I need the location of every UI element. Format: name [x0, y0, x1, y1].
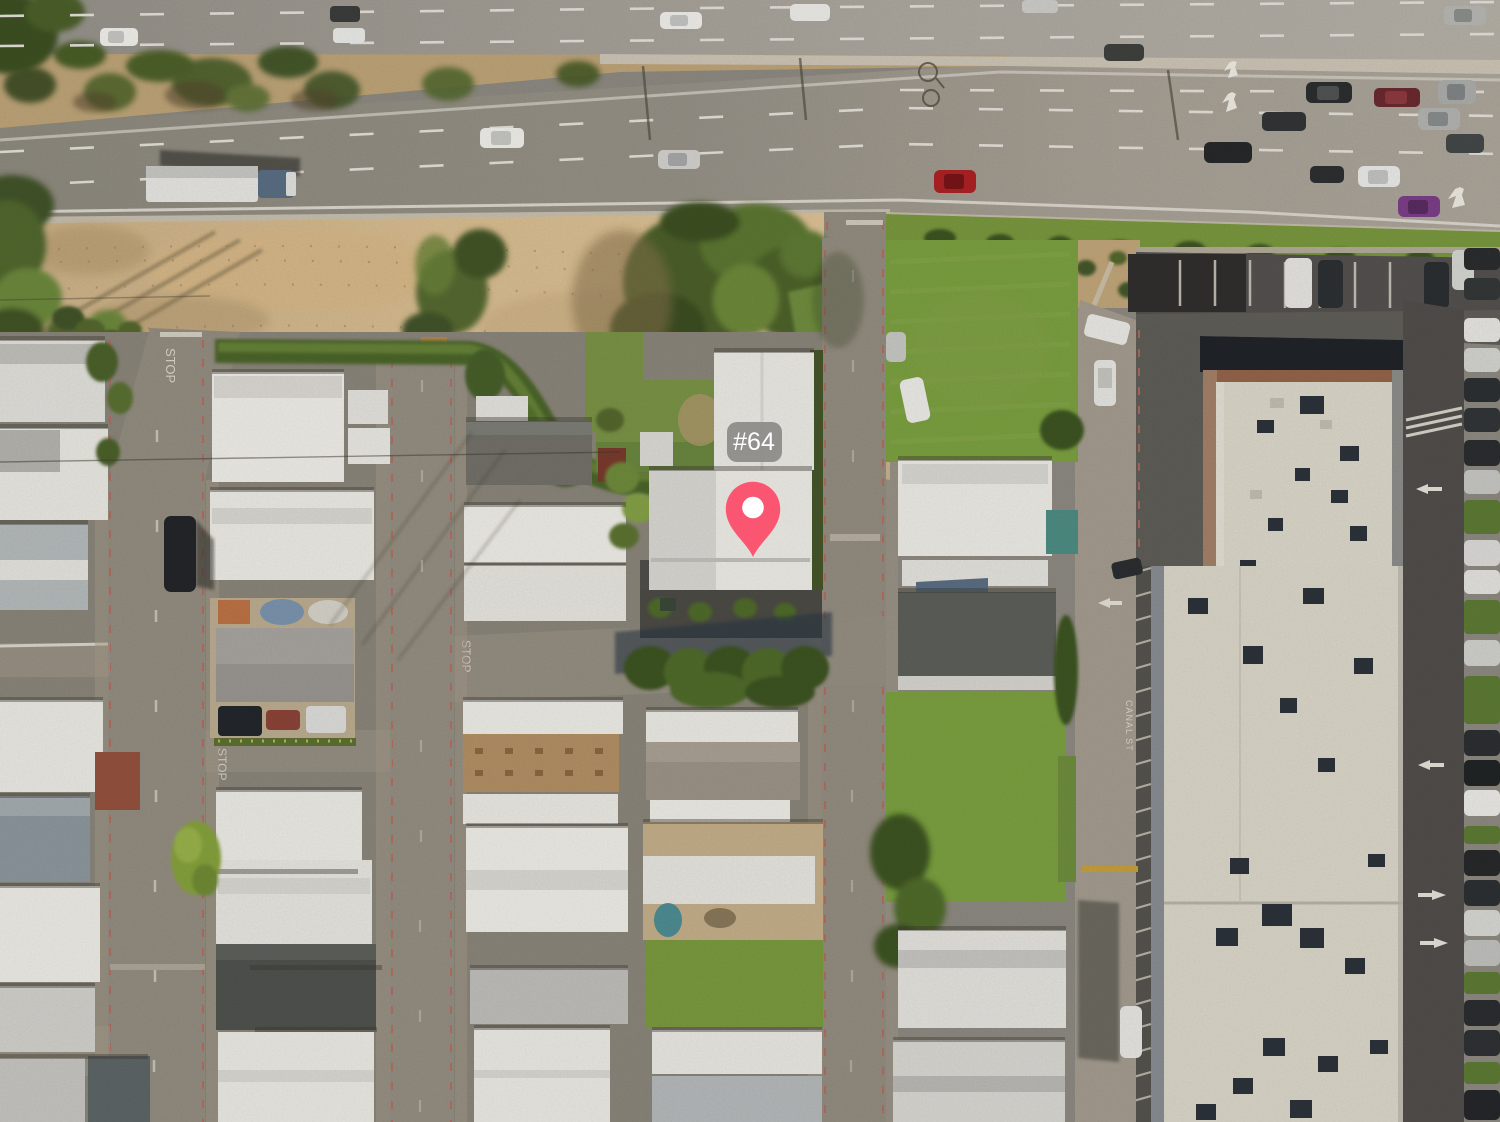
svg-text:#64: #64	[733, 428, 775, 456]
